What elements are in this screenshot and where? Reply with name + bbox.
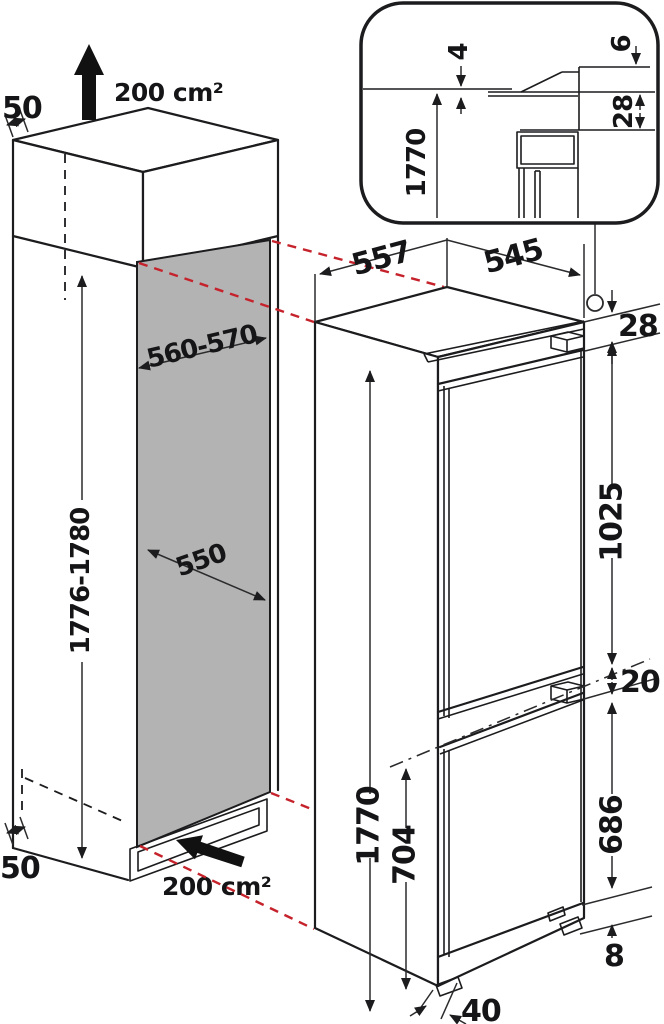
inset-gap4-label: 4 (444, 43, 474, 60)
inset-1770-label: 1770 (402, 129, 432, 197)
airflow-up-arrow (74, 44, 104, 120)
detail-reference-circle (587, 295, 603, 311)
projection-line-bottom-back (271, 793, 314, 810)
appliance-left-face (315, 322, 438, 986)
bottom-vent-label: 200 cm² (162, 872, 271, 901)
appliance-drawing: 557 545 28 1025 20 686 8 40 (315, 224, 660, 1024)
foot-offset-label: 40 (461, 994, 501, 1024)
niche-drawing: 50 200 cm² 560-570 1776-1780 550 50 200 … (0, 44, 278, 901)
base-height-label: 8 (604, 939, 624, 974)
niche-height-label: 1776-1780 (66, 508, 96, 655)
inset-28-label: 28 (609, 95, 639, 129)
base-ref-upper (582, 887, 652, 905)
inset-grille-label: 6 (607, 35, 637, 52)
body-depth-label: 545 (480, 232, 547, 281)
upper-door-label: 1025 (595, 482, 630, 562)
hidden-floor-edge (25, 778, 127, 823)
base-ref-lower (580, 916, 652, 934)
detail-inset: 4 6 28 1770 (361, 3, 658, 223)
bottom-clearance-tick-1 (5, 823, 13, 845)
page: { "diagram": { "niche": { "top_clearance… (0, 0, 664, 1024)
lower-section-label: 704 (388, 825, 423, 885)
top-vent-label: 200 cm² (114, 78, 223, 107)
top-gap-label: 28 (618, 309, 658, 344)
total-height-label: 1770 (352, 786, 387, 866)
foot-ext-2 (441, 983, 457, 1019)
door-gap-label: 20 (620, 665, 660, 700)
appliance-front-face (438, 322, 584, 986)
top-clearance-label: 50 (2, 91, 42, 126)
foot-arrow-1 (410, 1006, 426, 1016)
bottom-clearance-label: 50 (0, 851, 40, 886)
airflow-bottom-arrow (176, 835, 245, 867)
depth-total-label: 557 (348, 234, 415, 283)
bottom-clearance-arrows (7, 827, 25, 833)
lower-door-label: 686 (595, 795, 630, 855)
installation-diagram: 50 200 cm² 560-570 1776-1780 550 50 200 … (0, 0, 664, 1024)
